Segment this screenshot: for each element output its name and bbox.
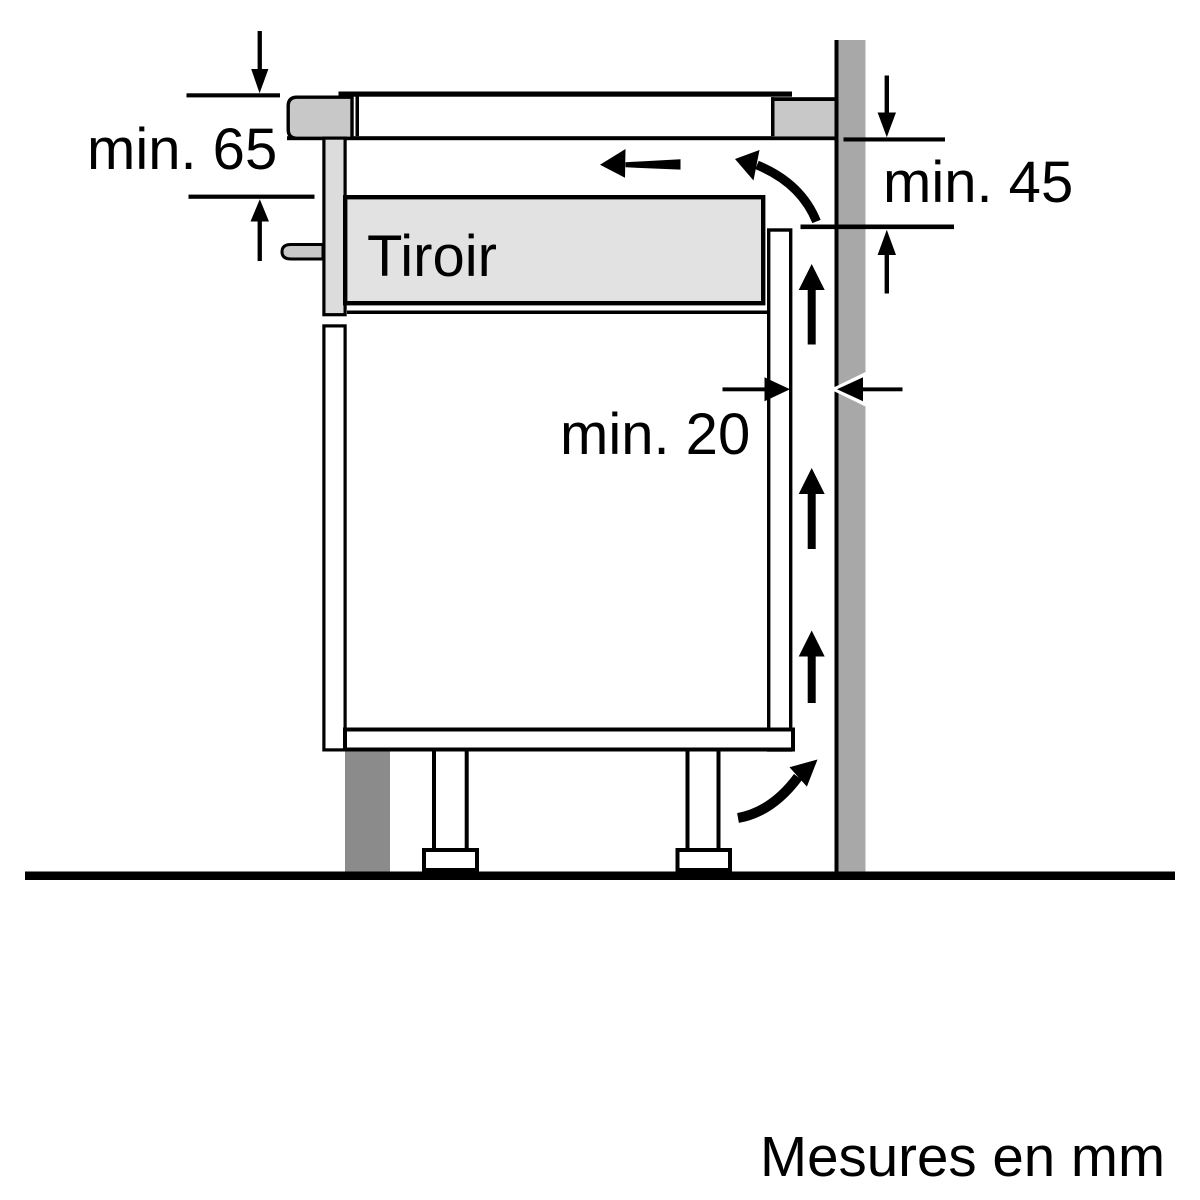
svg-text:min. 45: min. 45 xyxy=(883,150,1073,215)
svg-text:min. 65: min. 65 xyxy=(87,117,277,182)
svg-text:Mesures en mm: Mesures en mm xyxy=(760,1125,1165,1188)
svg-text:Tiroir: Tiroir xyxy=(367,224,497,289)
svg-text:min. 20: min. 20 xyxy=(560,402,750,467)
